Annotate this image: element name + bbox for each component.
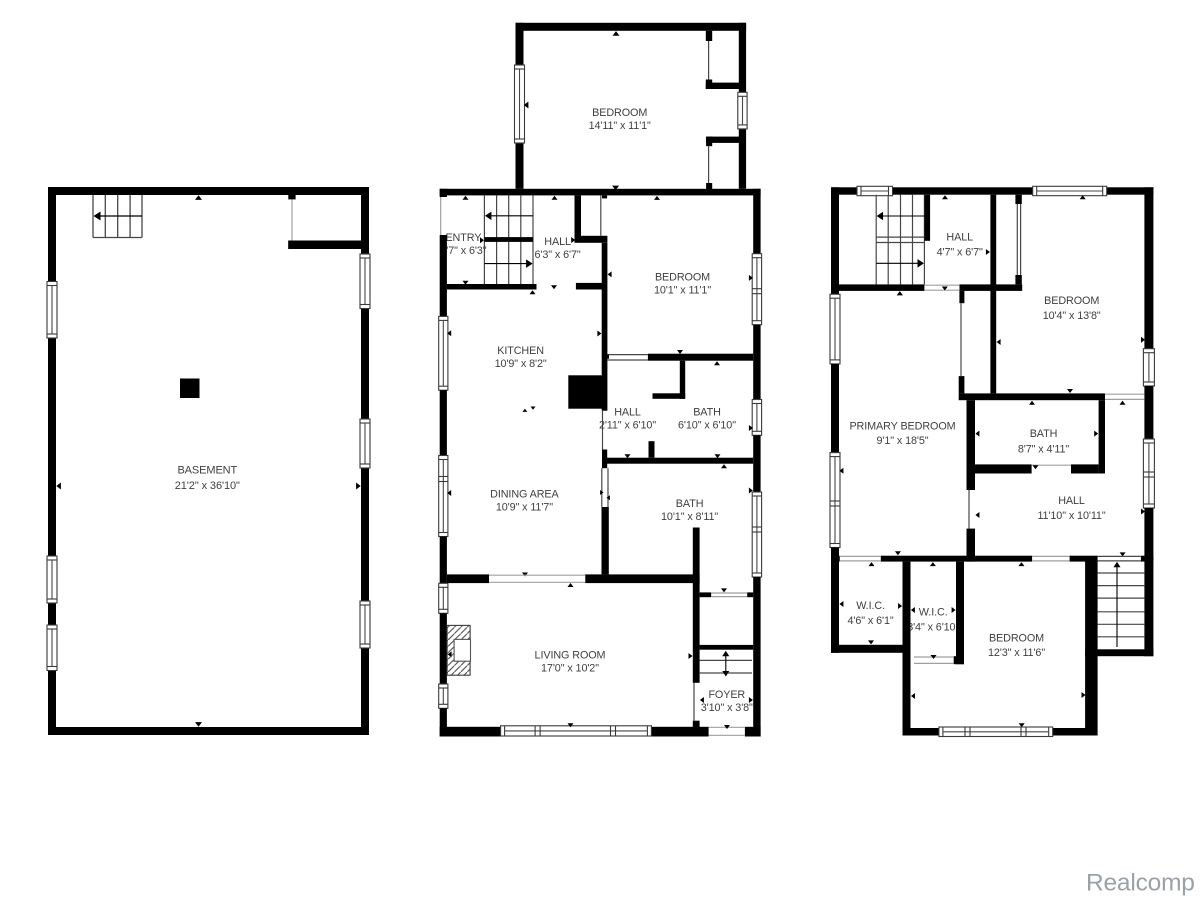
svg-text:HALL: HALL xyxy=(946,231,973,243)
svg-text:HALL: HALL xyxy=(544,236,571,248)
svg-text:11'10" x 10'11": 11'10" x 10'11" xyxy=(1037,510,1105,522)
svg-text:2'11" x 6'10": 2'11" x 6'10" xyxy=(599,419,656,431)
svg-text:3'4" x 6'10": 3'4" x 6'10" xyxy=(907,621,959,633)
svg-text:6'3" x 6'7": 6'3" x 6'7" xyxy=(535,249,581,261)
svg-text:14'11" x 11'1": 14'11" x 11'1" xyxy=(589,120,651,132)
svg-text:BEDROOM: BEDROOM xyxy=(655,271,710,283)
svg-text:LIVING ROOM: LIVING ROOM xyxy=(535,650,606,662)
svg-text:10'9" x 11'7": 10'9" x 11'7" xyxy=(496,502,553,514)
svg-text:Realcomp: Realcomp xyxy=(1086,870,1195,897)
svg-text:HALL: HALL xyxy=(614,406,641,418)
svg-text:BATH: BATH xyxy=(1030,428,1058,440)
svg-text:4'6" x 6'1": 4'6" x 6'1" xyxy=(848,615,894,627)
svg-text:10'1" x 8'11": 10'1" x 8'11" xyxy=(661,511,718,523)
svg-text:BEDROOM: BEDROOM xyxy=(989,633,1044,645)
svg-text:10'4" x 13'8": 10'4" x 13'8" xyxy=(1043,310,1101,322)
svg-text:DINING AREA: DINING AREA xyxy=(490,489,559,501)
svg-text:W.I.C.: W.I.C. xyxy=(856,600,885,612)
svg-text:FOYER: FOYER xyxy=(708,689,745,701)
svg-text:PRIMARY BEDROOM: PRIMARY BEDROOM xyxy=(849,421,955,433)
svg-text:6'10" x 6'10": 6'10" x 6'10" xyxy=(678,419,736,431)
svg-text:3'10" x 3'8": 3'10" x 3'8" xyxy=(701,702,753,714)
svg-text:ENTRY: ENTRY xyxy=(445,232,481,244)
svg-text:HALL: HALL xyxy=(1058,495,1085,507)
svg-text:21'2" x 36'10": 21'2" x 36'10" xyxy=(175,480,240,492)
svg-text:BATH: BATH xyxy=(693,406,721,418)
svg-text:4'7" x 6'7": 4'7" x 6'7" xyxy=(937,247,983,259)
svg-text:10'9" x 8'2": 10'9" x 8'2" xyxy=(495,358,547,370)
svg-text:W.I.C.: W.I.C. xyxy=(919,607,948,619)
svg-text:BEDROOM: BEDROOM xyxy=(592,107,647,119)
svg-text:BASEMENT: BASEMENT xyxy=(177,464,237,476)
svg-text:9'1" x 18'5": 9'1" x 18'5" xyxy=(876,435,928,447)
svg-text:BEDROOM: BEDROOM xyxy=(1044,295,1099,307)
svg-text:KITCHEN: KITCHEN xyxy=(497,345,544,357)
svg-text:17'0" x 10'2": 17'0" x 10'2" xyxy=(541,663,599,675)
svg-text:BATH: BATH xyxy=(676,498,704,510)
svg-text:12'3" x 11'6": 12'3" x 11'6" xyxy=(988,647,1045,659)
svg-text:8'7" x 4'11": 8'7" x 4'11" xyxy=(1018,444,1069,456)
svg-text:10'1" x 11'1": 10'1" x 11'1" xyxy=(654,284,711,296)
svg-text:2'7" x 6'3": 2'7" x 6'3" xyxy=(440,245,486,257)
